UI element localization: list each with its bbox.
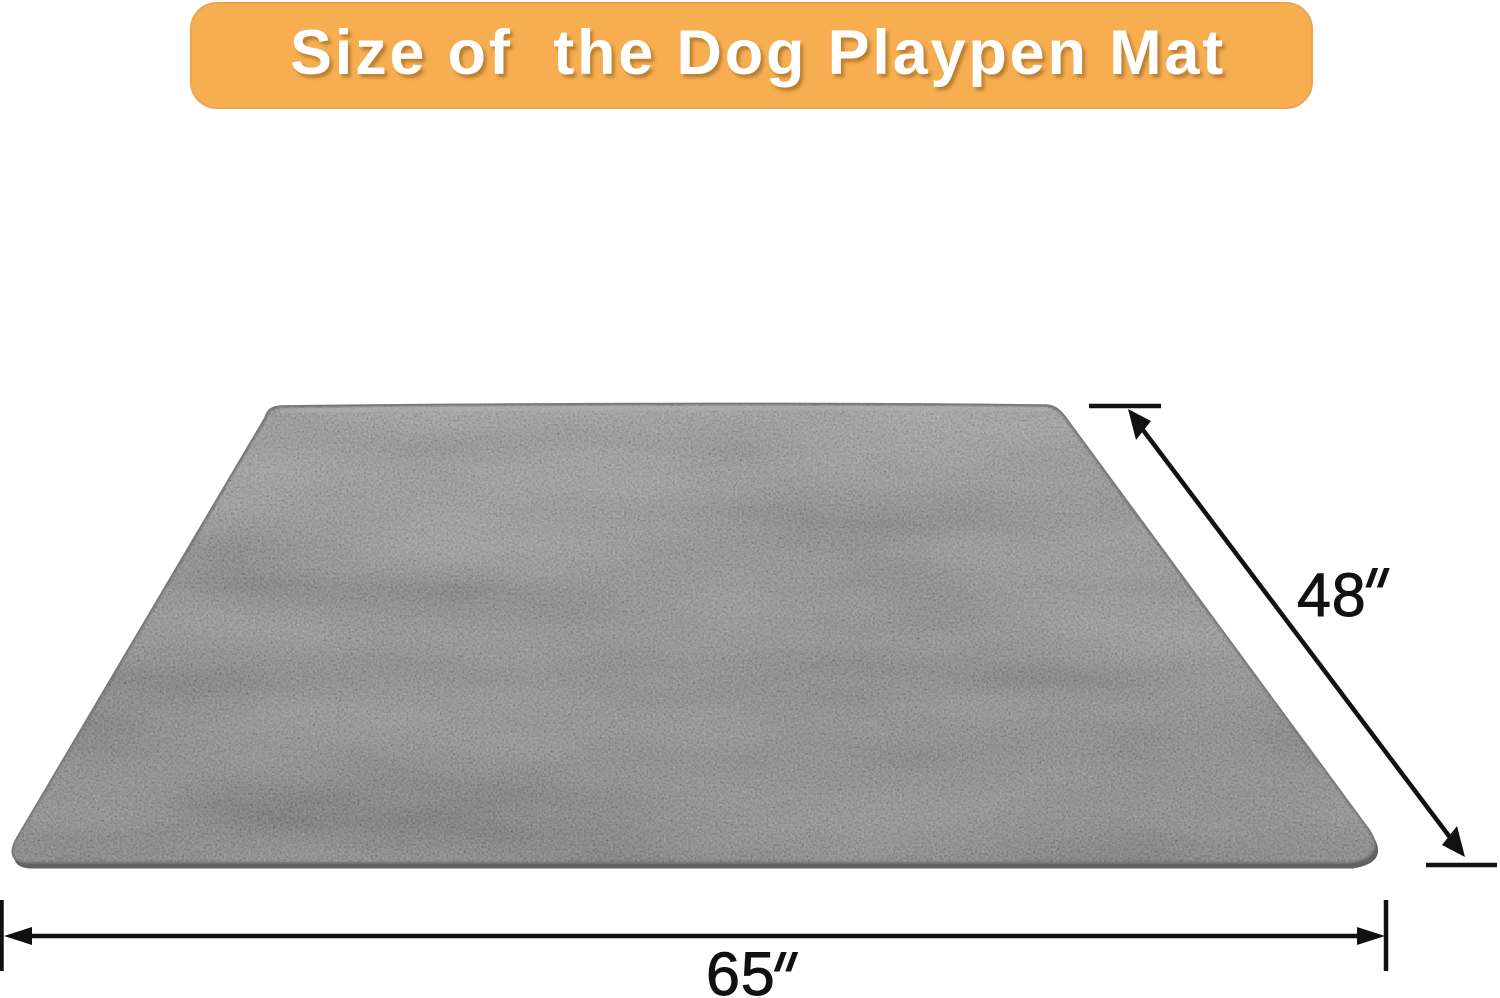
svg-text:48: 48 [1297,561,1366,629]
svg-text:65: 65 [706,940,775,998]
